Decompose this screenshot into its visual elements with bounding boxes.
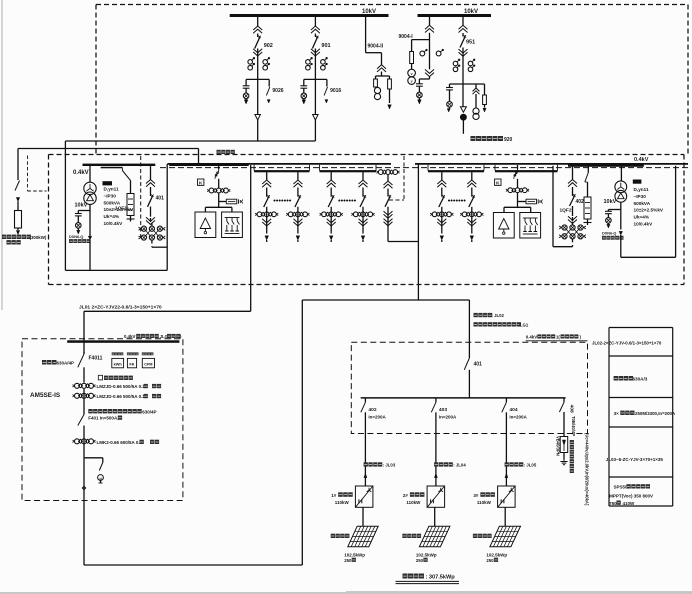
svg-text:MPPT(Voc) 350 800V: MPPT(Voc) 350 800V (609, 494, 653, 499)
svg-text:D,yn11: D,yn11 (104, 187, 120, 192)
svg-text:10/0.4kV: 10/0.4kV (634, 222, 654, 227)
svg-text:CPM: CPM (144, 363, 152, 367)
svg-text:10/0.4kV: 10/0.4kV (104, 221, 124, 226)
svg-text:~IP30: ~IP30 (634, 194, 647, 199)
svg-text:In=200A: In=200A (439, 414, 457, 419)
svg-text:: 307.5kWp: : 307.5kWp (426, 575, 456, 581)
svg-text:9026: 9026 (272, 88, 283, 94)
svg-text:1QF2: 1QF2 (560, 208, 572, 214)
svg-text:3#: 3# (473, 493, 479, 498)
svg-text:10±2×2.5%kV: 10±2×2.5%kV (634, 208, 664, 213)
svg-text:: JL03: : JL03 (383, 463, 396, 468)
svg-text:10kV: 10kV (362, 9, 376, 15)
svg-text:630A/4P: 630A/4P (57, 361, 75, 366)
svg-text:9004-I: 9004-I (399, 34, 414, 40)
svg-text:630A/3: 630A/3 (633, 377, 648, 382)
svg-text:401: 401 (474, 362, 483, 368)
svg-text:9016: 9016 (330, 88, 341, 94)
svg-text:In=200A: In=200A (368, 414, 386, 419)
svg-text:T0B/40/4P: T0B/40/4P (571, 416, 576, 436)
svg-text:9004-II: 9004-II (368, 44, 384, 50)
svg-text:401: 401 (156, 196, 165, 202)
svg-text:In=200A: In=200A (509, 414, 527, 419)
svg-text:750: 750 (609, 501, 617, 506)
svg-text:3×: 3× (614, 411, 620, 416)
svg-text:(300kW): (300kW) (30, 235, 47, 240)
svg-text:102.5kWp: 102.5kWp (486, 553, 507, 558)
svg-text:: JL05: : JL05 (524, 463, 537, 468)
svg-text:JL01 2×ZC-YJV22-0.6/1-3×150+1×: JL01 2×ZC-YJV22-0.6/1-3×150+1×70 (79, 304, 162, 310)
svg-text:[Uc=440v,Up≤2.0kV,In(8/20us)=4: [Uc=440v,Up≤2.0kV,In(8/20us)=40kA] (585, 433, 590, 506)
svg-text:DXN6-Q: DXN6-Q (602, 231, 616, 235)
svg-text:0.4kV: 0.4kV (124, 334, 136, 339)
svg-text:LMZJD-0.66 500/5A 0.2S: LMZJD-0.66 500/5A 0.2S (97, 394, 148, 399)
svg-text:1QF1: 1QF1 (115, 206, 127, 212)
svg-text:1#: 1# (331, 493, 337, 498)
svg-text:10kV: 10kV (75, 203, 88, 209)
svg-text:JL02-2×ZC-YJV-0.6/1-3×150+1×70: JL02-2×ZC-YJV-0.6/1-3×150+1×70 (592, 340, 662, 345)
svg-text:10kV: 10kV (604, 199, 617, 205)
svg-text:0.4kV: 0.4kV (73, 170, 89, 176)
svg-text:JL03~5-ZC-YJV-3×70+1×35: JL03~5-ZC-YJV-3×70+1×35 (606, 457, 664, 462)
svg-text:410W: 410W (623, 501, 636, 506)
svg-text:AM5SE-IS: AM5SE-IS (30, 392, 61, 399)
svg-text:500kVA: 500kVA (104, 200, 121, 205)
svg-text:Uk=4%: Uk=4% (104, 214, 120, 219)
svg-text:10kV: 10kV (464, 9, 478, 15)
svg-text:F401 In=500A,1: F401 In=500A,1 (88, 416, 121, 421)
svg-text:kWh: kWh (114, 362, 123, 367)
svg-text:: JL02: : JL02 (492, 313, 505, 318)
svg-text:630/4P: 630/4P (142, 409, 156, 414)
svg-text:LMK2-0.66 600/5A 0.5: LMK2-0.66 600/5A 0.5 (97, 440, 143, 445)
svg-text:: JL04: : JL04 (453, 463, 466, 468)
svg-text:901: 901 (321, 43, 330, 49)
svg-text:102.5kWp: 102.5kWp (416, 553, 437, 558)
svg-text:250: 250 (486, 558, 494, 563)
svg-text:250M/3300,In=200A: 250M/3300,In=200A (635, 411, 676, 416)
svg-text:FK: FK (129, 362, 134, 367)
svg-text:920: 920 (504, 137, 513, 143)
svg-text:LMZJD-0.66 500/5A 0.2S: LMZJD-0.66 500/5A 0.2S (97, 384, 148, 389)
svg-text:951: 951 (466, 40, 475, 46)
svg-text:250: 250 (416, 558, 424, 563)
svg-text:102.5kWp: 102.5kWp (344, 553, 365, 558)
svg-text:402: 402 (576, 199, 585, 205)
svg-text:Uk=4%: Uk=4% (634, 215, 650, 220)
svg-text:F4011: F4011 (89, 356, 103, 362)
svg-text:110kW: 110kW (335, 500, 350, 505)
svg-text:500kVA: 500kVA (634, 201, 651, 206)
svg-text:404: 404 (509, 407, 517, 413)
svg-text:DXN6-Q: DXN6-Q (69, 235, 83, 239)
svg-text:902: 902 (264, 43, 273, 49)
svg-text:403: 403 (439, 407, 447, 413)
svg-text:SPS50: SPS50 (614, 485, 629, 490)
svg-text:0.4kV: 0.4kV (634, 157, 649, 163)
svg-text:408: 408 (569, 405, 575, 413)
svg-text:0.4kV: 0.4kV (526, 335, 538, 340)
svg-text:402: 402 (368, 407, 376, 413)
svg-text:~IP30: ~IP30 (104, 193, 117, 198)
svg-text:250: 250 (344, 558, 352, 563)
svg-text:1(: 1( (556, 335, 560, 340)
svg-text:v: v (411, 80, 413, 84)
svg-text:JLG1: JLG1 (518, 323, 529, 328)
svg-text:D,yn11: D,yn11 (634, 187, 650, 192)
svg-text:110kW: 110kW (477, 500, 492, 505)
svg-text:2#: 2# (403, 493, 409, 498)
svg-text:v: v (411, 72, 413, 76)
svg-text:110kW: 110kW (406, 500, 421, 505)
